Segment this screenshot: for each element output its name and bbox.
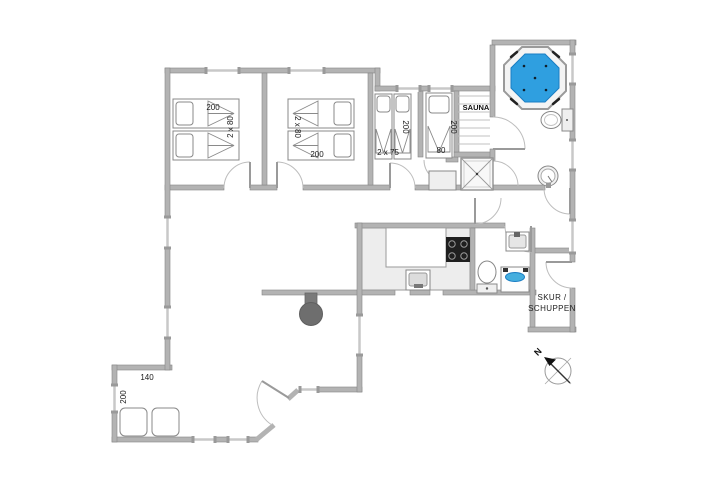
window [111, 411, 118, 414]
north-label: N [532, 346, 544, 358]
window [569, 83, 576, 86]
kitchen [362, 228, 470, 290]
bedroom2-width-label: 2 x 80 [293, 116, 302, 138]
door-arc-shower-room [493, 161, 518, 186]
spa-round-sink [538, 166, 558, 188]
window [166, 217, 169, 248]
alcove-width-label: 140 [140, 373, 154, 382]
cabinet [429, 171, 456, 190]
door-arc-bedroom3 [390, 163, 415, 188]
window [228, 438, 248, 441]
window [206, 69, 239, 72]
diagonal-wall [256, 425, 274, 440]
window [113, 385, 116, 412]
alcove-depth-label: 200 [119, 390, 128, 404]
window [164, 337, 171, 340]
spa-toilet [541, 109, 573, 131]
sauna: SAUNA [458, 96, 490, 144]
window [397, 87, 420, 90]
door-arc-bedroom2 [277, 162, 303, 188]
bedroom3-length-label: 200 [401, 120, 410, 134]
washing-machine [501, 267, 529, 292]
window [323, 67, 326, 74]
shed-label-line1: SKUR / [537, 293, 566, 302]
window [227, 436, 230, 443]
bedroom4-length-label: 200 [449, 120, 458, 134]
window [193, 438, 215, 441]
window [205, 67, 208, 74]
door-arc-spa-hall [544, 188, 570, 214]
wc [477, 232, 529, 293]
wood-stove [300, 293, 323, 326]
window [429, 87, 452, 90]
window [247, 436, 250, 443]
door-leaf [262, 381, 289, 398]
window [569, 252, 576, 255]
alcove-bed [152, 408, 179, 436]
window [164, 306, 171, 309]
bedroom-3: 200 2 x 75 [375, 94, 411, 159]
shed-label-line2: SCHUPPEN [528, 304, 576, 313]
bedroom-4: 200 80 [426, 93, 458, 158]
bedroom3-width-label: 2 x 75 [377, 148, 399, 157]
door-arc-terrace [257, 381, 272, 425]
pillow [176, 134, 193, 157]
diagonal-wall [288, 390, 298, 399]
door-arc-sauna [493, 117, 525, 149]
shed: SKUR / SCHUPPEN [528, 293, 576, 313]
pillow [334, 134, 351, 157]
window [166, 307, 169, 338]
alcove-bed [120, 408, 147, 436]
door-arc-hallway [475, 198, 501, 224]
sauna-label: SAUNA [463, 103, 490, 112]
window [569, 169, 576, 172]
window [571, 220, 574, 253]
window [192, 436, 195, 443]
pillow [396, 96, 409, 112]
window [238, 67, 241, 74]
bedroom-2: 2 x 80 200 [288, 99, 354, 160]
bedroom1-width-label: 2 x 80 [226, 116, 235, 138]
bedroom4-width-label: 80 [437, 146, 446, 155]
window [419, 85, 422, 92]
window [569, 139, 576, 142]
window [451, 85, 454, 92]
pillow [377, 96, 390, 112]
wc-toilet [477, 261, 497, 293]
washbasin [506, 273, 525, 282]
door-arc-shed [546, 262, 572, 288]
window [571, 140, 574, 170]
window [356, 354, 363, 357]
window [289, 69, 324, 72]
window [164, 216, 171, 219]
window [358, 315, 361, 355]
window [214, 436, 217, 443]
floor-plan-svg: 200 2 x 80 2 x 80 200 200 2 x 75 200 80 [0, 0, 718, 479]
pillow [429, 96, 449, 113]
wc-sink [506, 232, 529, 251]
door-arc-bedroom1 [224, 162, 250, 188]
window [111, 384, 118, 387]
spa-room [504, 47, 573, 188]
window [164, 247, 171, 250]
pillow [334, 102, 351, 125]
window [300, 388, 318, 391]
floor-plan: 200 2 x 80 2 x 80 200 200 2 x 75 200 80 [0, 0, 718, 479]
bedroom-1: 200 2 x 80 [173, 99, 239, 160]
window [288, 67, 291, 74]
bedroom1-length-label: 200 [206, 103, 220, 112]
window [396, 85, 399, 92]
window [571, 54, 574, 84]
window [317, 386, 320, 393]
window [428, 85, 431, 92]
shower [461, 158, 493, 190]
window [569, 219, 576, 222]
pillow [176, 102, 193, 125]
kitchen-sink [406, 270, 430, 290]
compass: N [532, 346, 571, 384]
window [299, 386, 302, 393]
alcove: 140 200 [119, 373, 179, 436]
window [356, 314, 363, 317]
bedroom2-length-label: 200 [310, 150, 324, 159]
window [569, 53, 576, 56]
